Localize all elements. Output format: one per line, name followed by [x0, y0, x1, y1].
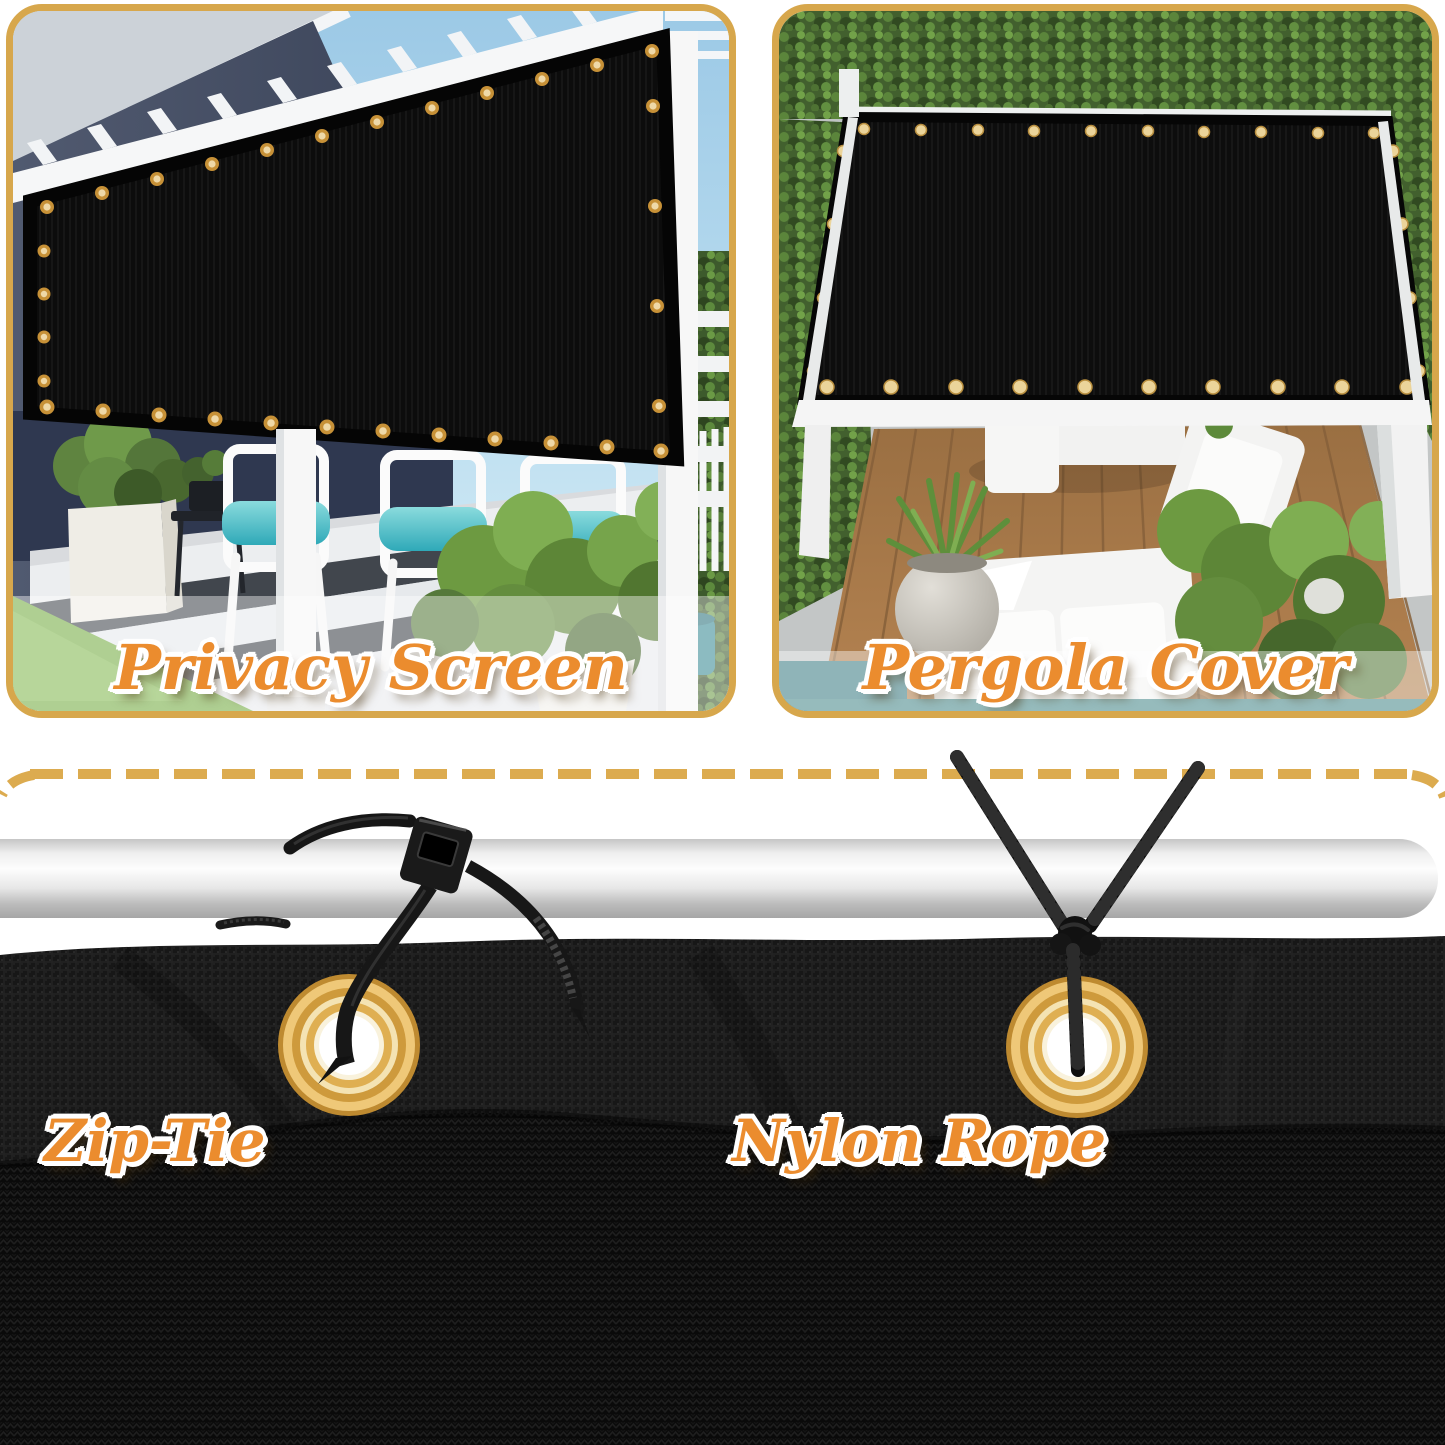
caption-zip-tie: Zip-Tie [44, 1112, 266, 1170]
image-panel-pergola-cover: Pergola Cover [772, 4, 1439, 718]
privacy-scene-illustration [13, 11, 729, 711]
mounting-rail [0, 839, 1438, 918]
dashed-guide-line [2, 774, 1444, 797]
hedge-top [779, 11, 1432, 119]
product-image: Privacy Screen [0, 0, 1445, 1445]
caption-nylon-rope: Nylon Rope [732, 1112, 1106, 1170]
pergola-cover-fabric [803, 111, 1425, 400]
caption-pergola-cover: Pergola Cover [779, 637, 1432, 699]
installation-diagram [0, 718, 1445, 1445]
pergola-scene-illustration [779, 11, 1432, 711]
image-panel-privacy-screen: Privacy Screen [6, 4, 736, 718]
caption-privacy-screen: Privacy Screen [13, 637, 729, 699]
shade-fabric [0, 936, 1445, 1445]
